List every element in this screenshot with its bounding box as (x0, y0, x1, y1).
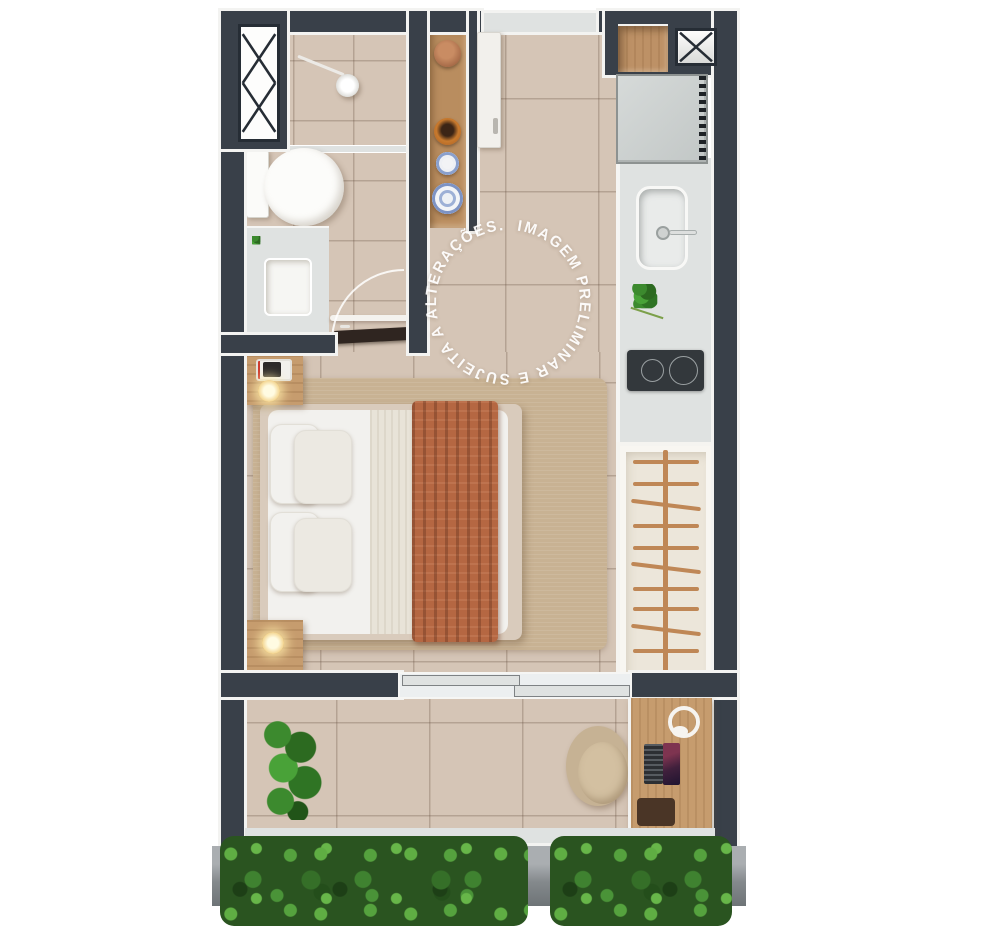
cooktop-burner-right (669, 356, 698, 385)
balcony-chair-seat (578, 742, 628, 804)
vanity-sink (264, 258, 312, 316)
right-wall (711, 8, 740, 852)
bedroom-bottom-wall (218, 670, 404, 700)
entry-door-handle (493, 118, 498, 134)
headphones-earcup (672, 726, 688, 737)
bathroom-bottom-wall (218, 332, 338, 356)
watermark-text: IMAGEM PRELIMINAR E SUJEITA A ALTERAÇÕES… (423, 217, 593, 387)
sliding-door-panel-front (514, 685, 630, 697)
laptop-keyboard (644, 744, 663, 784)
hanger (633, 460, 699, 464)
sliding-door-panel-rear (402, 675, 520, 686)
balcony-plant (256, 716, 328, 820)
radio-screen (263, 362, 281, 377)
kitchen-faucet (656, 226, 670, 240)
shelf-bowl-brown (434, 40, 461, 67)
vanity-plant (252, 236, 260, 244)
hanger (633, 482, 699, 486)
hanger (633, 587, 699, 591)
shelf-bowl-orange (434, 118, 461, 145)
shower-head (336, 74, 359, 97)
nightstand-lamp-top (258, 380, 280, 402)
pillow (294, 518, 352, 592)
svg-text:IMAGEM PRELIMINAR E SUJEITA A: IMAGEM PRELIMINAR E SUJEITA A ALTERAÇÕES… (423, 217, 593, 387)
hanger (633, 649, 699, 653)
hanger (633, 524, 699, 528)
balcony-right-wall-block (628, 670, 740, 700)
toilet-bowl (264, 148, 344, 226)
nightstand-lamp-bottom (262, 632, 284, 654)
fridge (616, 74, 708, 164)
watermark: IMAGEM PRELIMINAR E SUJEITA A ALTERAÇÕES… (378, 172, 638, 432)
floor-plan: IMAGEM PRELIMINAR E SUJEITA A ALTERAÇÕES… (0, 0, 1000, 935)
entry-cabinet (618, 24, 668, 72)
ventilation-shaft-right (675, 28, 717, 66)
bathroom-door-handle (340, 325, 350, 328)
kitchen-faucet-arm (669, 230, 697, 235)
hedge-right (550, 836, 732, 926)
hedge-left (220, 836, 528, 926)
hanger (633, 546, 699, 550)
laptop-screen (663, 743, 680, 785)
fridge-hinge-strip (699, 76, 706, 162)
throw-blanket (412, 401, 498, 642)
desk-tray (637, 798, 675, 826)
pillow (294, 430, 352, 504)
hanger (633, 607, 699, 611)
ventilation-shaft-left (238, 24, 280, 142)
cooktop-burner-left (641, 359, 664, 382)
